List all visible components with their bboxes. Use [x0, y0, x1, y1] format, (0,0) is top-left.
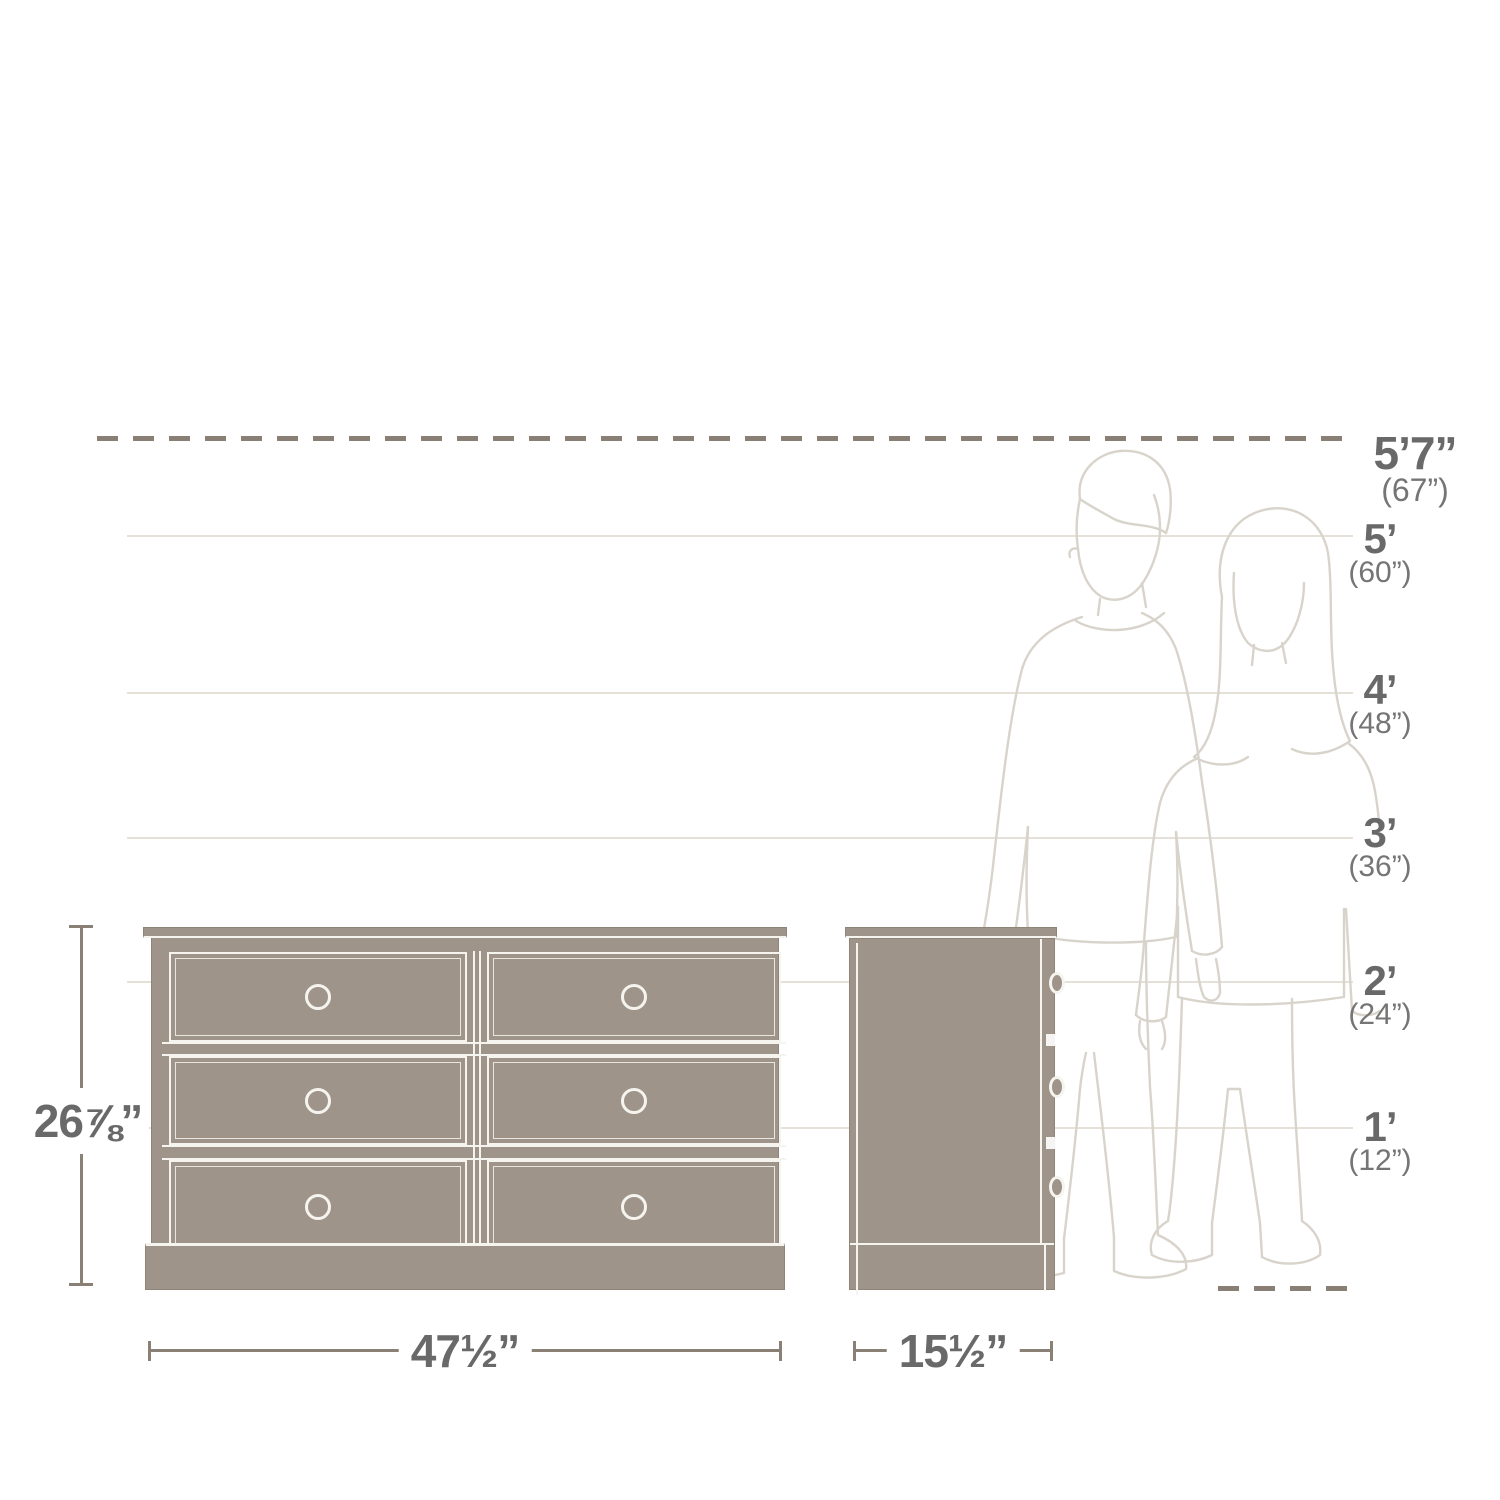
drawer-knob-side: [1049, 1076, 1065, 1098]
height-marker-4ft: 4’ (48”): [1320, 668, 1440, 740]
drawer-gap-notch: [1046, 1034, 1060, 1046]
drawer-knob: [621, 1088, 647, 1114]
base-notch-line: [1044, 1243, 1046, 1291]
height-marker-feet-label: 1’: [1320, 1105, 1440, 1149]
height-marker-1ft: 1’ (12”): [1320, 1105, 1440, 1177]
height-dimension-cap-top: [69, 925, 93, 928]
depth-dimension-cap-right: [1050, 1341, 1053, 1361]
height-marker-feet-label: 5’7”: [1352, 429, 1478, 477]
height-marker-feet-label: 3’: [1320, 811, 1440, 855]
height-marker-inches-label: (67”): [1352, 473, 1478, 507]
height-dimension-label: 26⅞”: [28, 1088, 149, 1154]
height-dimension-cap-bottom: [69, 1283, 93, 1286]
base-separation-line: [850, 1243, 1054, 1245]
height-marker-5ft7: 5’7” (67”): [1352, 429, 1478, 507]
dresser-front-view: [143, 927, 787, 1291]
height-marker-feet-label: 4’: [1320, 668, 1440, 712]
height-marker-inches-label: (60”): [1320, 557, 1440, 589]
dresser-top-board: [143, 927, 787, 938]
dresser-base: [145, 1243, 785, 1290]
drawer-gap-notch: [1046, 1137, 1060, 1149]
drawer-face: [487, 952, 781, 1042]
dresser-front-body: [151, 938, 779, 1245]
height-marker-feet-label: 5’: [1320, 517, 1440, 561]
height-marker-inches-label: (24”): [1320, 999, 1440, 1031]
dresser-side-body: [849, 938, 1055, 1290]
depth-dimension-cap-left: [853, 1341, 856, 1361]
dresser-side-view: [845, 927, 1057, 1291]
height-marker-2ft: 2’ (24”): [1320, 959, 1440, 1031]
height-marker-inches-label: (48”): [1320, 708, 1440, 740]
drawer-knob-side: [1049, 972, 1065, 994]
drawer-rail: [162, 1042, 786, 1056]
width-dimension-cap-right: [779, 1341, 782, 1361]
drawer-knob-side: [1049, 1176, 1065, 1198]
drawer-knob: [621, 984, 647, 1010]
drawer-knob: [621, 1194, 647, 1220]
drawer-face: [169, 952, 467, 1042]
height-marker-5ft: 5’ (60”): [1320, 517, 1440, 589]
height-marker-inches-label: (36”): [1320, 851, 1440, 883]
dimension-diagram: 5’7” (67”) 5’ (60”) 4’ (48”) 3’ (36”) 2’…: [0, 0, 1500, 1500]
drawer-knob: [305, 984, 331, 1010]
drawer-face: [169, 1160, 467, 1253]
width-dimension-label: 47½”: [399, 1322, 532, 1380]
depth-dimension-label: 15½”: [887, 1322, 1020, 1380]
drawer-front-edge-line: [1040, 939, 1042, 1244]
floor-line: [1218, 1286, 1351, 1291]
drawer-knob: [305, 1194, 331, 1220]
drawer-column-divider: [473, 951, 481, 1254]
drawer-face: [487, 1160, 781, 1253]
drawer-face: [487, 1056, 781, 1145]
height-marker-3ft: 3’ (36”): [1320, 811, 1440, 883]
drawer-face: [169, 1056, 467, 1145]
drawer-knob: [305, 1088, 331, 1114]
dresser-side-top-board: [845, 927, 1057, 938]
height-marker-inches-label: (12”): [1320, 1145, 1440, 1177]
drawer-rail: [162, 1145, 786, 1160]
width-dimension-cap-left: [148, 1341, 151, 1361]
height-marker-feet-label: 2’: [1320, 959, 1440, 1003]
